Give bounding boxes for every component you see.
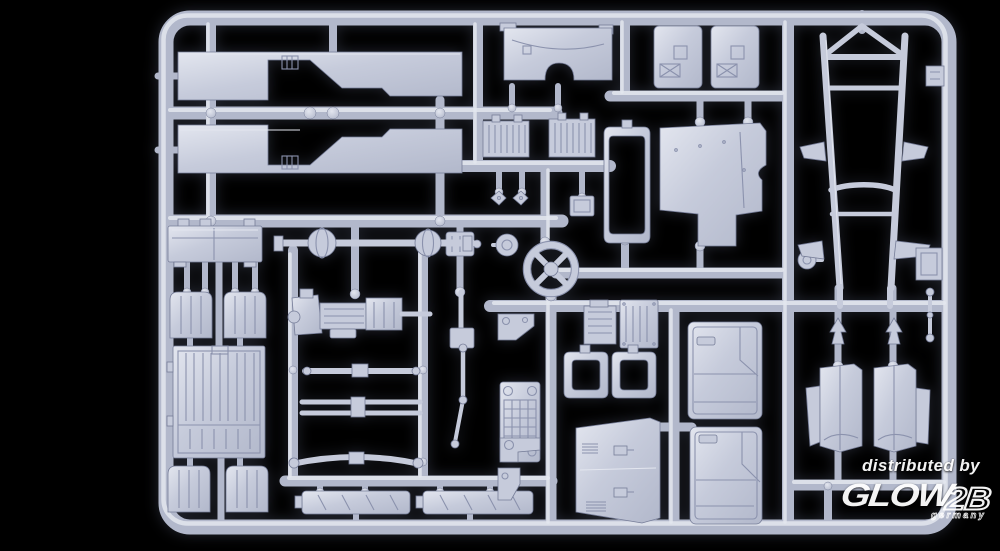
leaf-spring-pair [302,397,420,417]
windshield-frame [604,120,650,243]
leaf-spring-front [303,364,420,377]
front-axle [274,228,472,258]
hood-panel [576,418,660,523]
seat-rear-left [168,466,210,512]
fender-clip-left [830,318,846,344]
cab-floor-panel-lower [178,125,462,173]
cab-door-rear [690,427,762,524]
seat-front-left [170,292,212,338]
cab-rear-panel [660,123,766,246]
leaf-spring-rear [289,452,423,468]
radiator-core-front [483,115,529,157]
chassis-ladder-frame [798,26,930,306]
door-inner-panel-right [711,26,759,88]
front-fender-right [874,364,930,452]
engine-block-half-left [584,300,616,344]
side-window-frame-left [564,345,608,398]
fender-clip-right [886,318,902,344]
running-board-left [295,491,410,514]
cab-door-front [688,322,762,419]
front-fender-left [806,364,862,452]
cargo-bed-floor [167,346,265,458]
steering-column-linkage [450,292,474,448]
battery-box [168,219,262,267]
side-window-frame-right [612,345,656,398]
watermark-distributed-by: distributed by [862,456,990,476]
watermark-brand-glow: GLOW [839,480,953,512]
door-inner-panel-left [654,26,702,88]
radiator-core-rear [549,113,595,157]
seat-rear-right [226,466,268,512]
running-board-right [416,491,533,514]
model-kit-sprue-photo: distributed by GLOW 2B germany [0,0,1000,551]
watermark-brand: GLOW 2B [841,477,990,517]
relay-box [570,196,594,216]
watermark: distributed by GLOW 2B germany [802,456,990,521]
clip-fasteners [491,191,528,205]
cab-floor-panel-upper [178,52,462,100]
seat-front-right [224,292,266,338]
mounting-bracket [498,314,534,340]
engine-block-half-right [620,300,658,348]
dashboard-panel [500,23,613,80]
watermark-brand-2b: 2B [944,483,992,515]
horn-dome [493,234,518,256]
